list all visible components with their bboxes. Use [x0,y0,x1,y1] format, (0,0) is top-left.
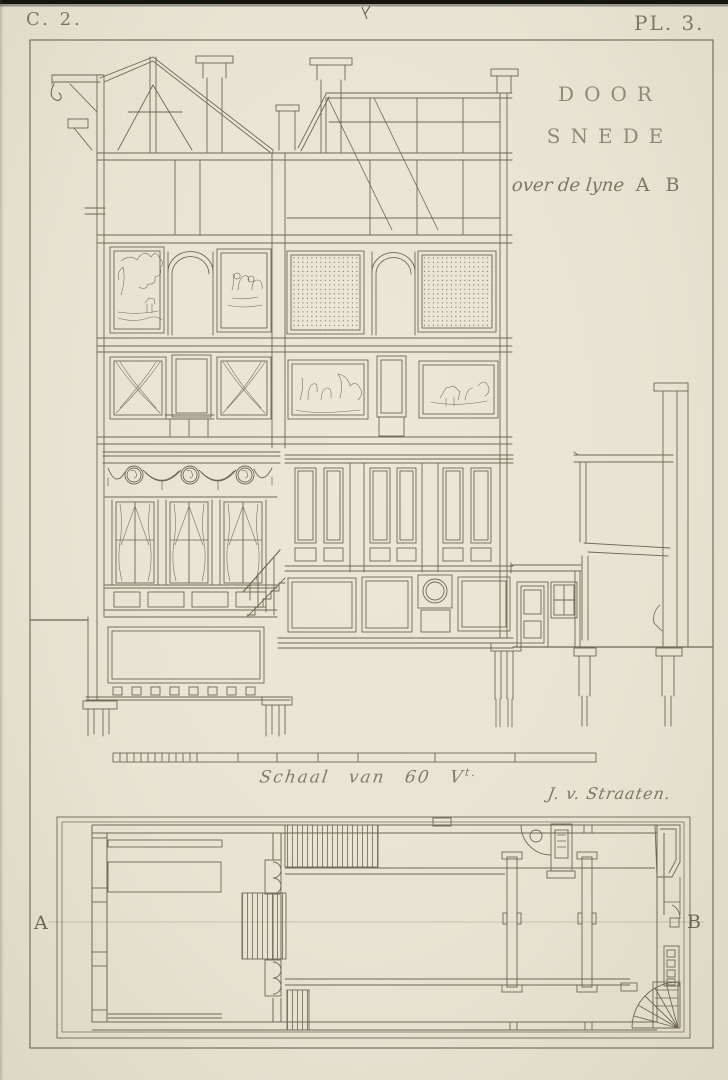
rear-wall-footing [491,643,521,727]
roof-truss [100,57,273,153]
valley-parapet [273,105,299,153]
engraver-signature: J. v. Straaten. [546,784,672,803]
engraving-sheet: C. 2. PL. 3. DOOR SNEDE over de lyne A B… [0,0,728,1080]
hoist-beam [51,75,100,150]
plan-front-room [108,840,222,1018]
panelled-room [278,455,513,648]
painting-figures-2 [296,374,362,413]
title-line-2: SNEDE [516,124,694,148]
section-drawing [30,56,712,736]
salon [103,452,280,617]
title-subtitle: over de lyne A B [512,174,708,196]
plan-stairs [242,825,378,1030]
painting-figures-3 [431,382,489,406]
plate-number-label: PL. 3. [634,11,705,35]
attic-framing [328,98,500,230]
plan-right-closets [655,825,680,986]
flat-roof [298,69,518,153]
registration-mark [362,6,370,19]
salon-lower-panels [114,592,266,607]
foundation-piles [83,697,292,736]
wainscot [288,575,510,632]
rear-shed [511,563,581,647]
title-line-1: DOOR [516,82,694,106]
pavilion-piles [574,648,682,726]
lower-picture-wall [110,355,498,436]
salon-windows [112,500,266,585]
frieze-garlands [108,466,272,490]
scale-caption-text: Schaal van 60 V [258,768,465,788]
scale-bar [113,753,596,762]
basement [30,617,292,736]
plan-label-b: B [687,911,701,933]
painting-figures-1 [228,273,262,307]
painting-landscape-1 [118,253,163,320]
plan-label-a: A [34,912,48,934]
plan-stove [547,824,575,878]
curtain-window-2 [223,362,265,413]
console-table [165,415,214,436]
garden-pavilion [574,383,688,726]
floor-plan [48,817,704,1038]
chimney-middle [310,58,352,153]
series-label: C. 2. [26,9,83,30]
subtitle-script: over de lyne [511,175,625,196]
curtain-window-1 [116,362,160,413]
scale-caption-superscript: t. [464,766,478,779]
upper-picture-wall [110,247,496,335]
plan-winder-stair [621,982,680,1028]
scale-caption: Schaal van 60 Vt. [226,766,509,788]
subtitle-section-points: A B [636,174,685,196]
plate-drawing [0,0,728,1080]
joists [113,687,255,695]
